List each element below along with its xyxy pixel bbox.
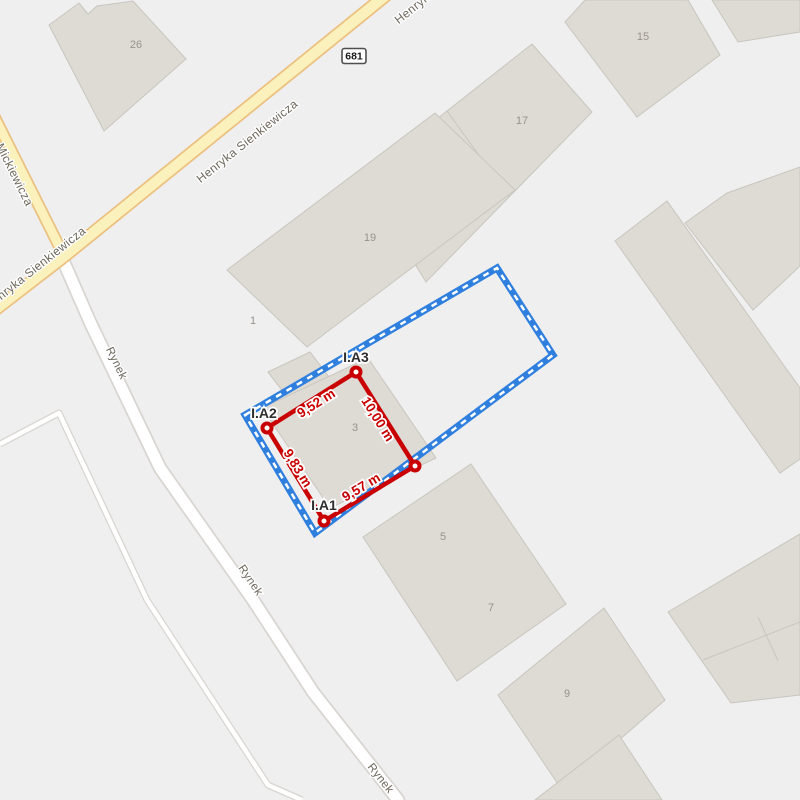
route-badge: 681	[342, 49, 366, 64]
building-label-9: 9	[564, 688, 570, 700]
route-badge-text: 681	[345, 51, 363, 63]
vertex-handle-p2[interactable]	[411, 462, 420, 471]
vertex-label-I.A1: I.A1	[311, 497, 337, 513]
vertex-label-I.A3: I.A3	[343, 349, 369, 365]
map-svg: 2615171913579Henryka SienkiewiczaHenryka…	[0, 0, 800, 800]
building-label-17: 17	[516, 115, 528, 127]
building-label-26: 26	[130, 39, 142, 51]
building-label-5: 5	[440, 531, 446, 543]
building-label-3: 3	[352, 422, 358, 434]
vertex-handle-I.A3[interactable]	[352, 368, 361, 377]
vertex-handle-I.A1[interactable]	[320, 517, 329, 526]
building-label-1: 1	[250, 315, 256, 327]
building-label-19: 19	[364, 232, 376, 244]
vertex-handle-I.A2[interactable]	[263, 424, 272, 433]
vertex-label-I.A2: I.A2	[251, 405, 277, 421]
building-label-15: 15	[637, 31, 649, 43]
map-canvas[interactable]: 2615171913579Henryka SienkiewiczaHenryka…	[0, 0, 800, 800]
building-label-7: 7	[488, 602, 494, 614]
